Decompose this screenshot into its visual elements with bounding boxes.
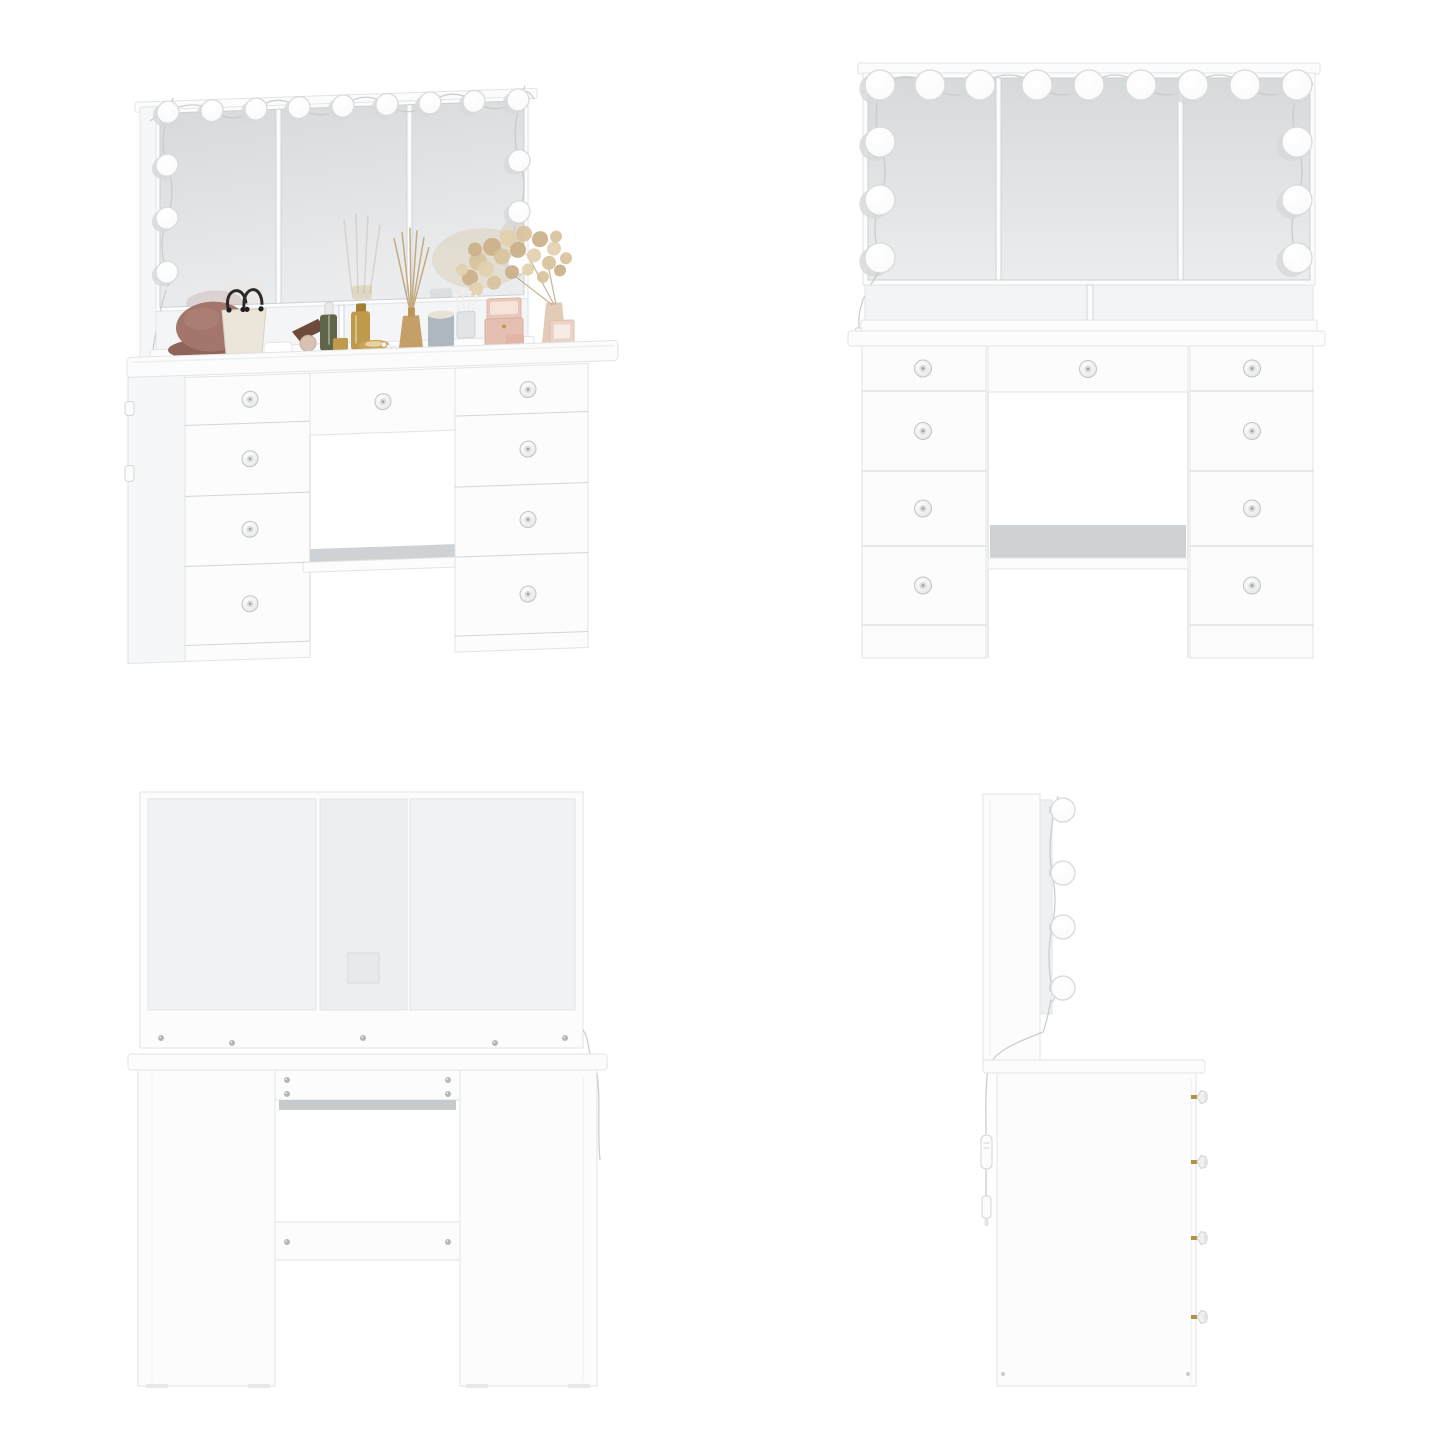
light-bulb <box>1282 127 1312 157</box>
desk-side-panel <box>128 376 185 664</box>
drawer-knob <box>1244 423 1261 440</box>
light-bulb <box>463 90 485 113</box>
screw <box>229 1040 235 1046</box>
view-side <box>723 723 1445 1445</box>
mirror-mullion <box>407 105 412 299</box>
light-bulb <box>419 92 441 115</box>
drawer-knob <box>520 586 536 603</box>
center-drawer <box>988 346 1188 392</box>
power-plug <box>982 1196 991 1226</box>
light-bulb <box>156 207 178 230</box>
power-strip <box>125 401 134 415</box>
drawer-pedestal-right <box>455 363 588 652</box>
back-apron <box>275 1070 460 1100</box>
light-bulb <box>865 127 895 157</box>
screw <box>445 1077 451 1083</box>
small-box <box>506 334 524 345</box>
mirror-mullion <box>276 109 281 303</box>
powder-compact <box>300 335 316 352</box>
metal-rail <box>279 1100 456 1110</box>
drawer-knob <box>520 381 536 398</box>
back-view-illustration <box>0 723 723 1445</box>
light-bulb <box>1282 70 1312 100</box>
cable-cutout <box>348 953 379 983</box>
cream-jar <box>333 338 348 351</box>
light-bulb <box>1282 243 1312 273</box>
candle <box>428 310 454 347</box>
dried-flower-sprig <box>550 230 562 242</box>
pedestal-back-right <box>460 1070 597 1386</box>
cabinet-side <box>997 1073 1196 1386</box>
screw <box>284 1077 290 1083</box>
dried-flower-sprig <box>560 252 572 264</box>
tabletop <box>983 1060 1205 1073</box>
power-strip <box>125 465 134 481</box>
light-bulb <box>1230 70 1260 100</box>
light-bulb <box>865 243 895 273</box>
photo-frame <box>550 320 574 343</box>
inline-switch <box>981 1135 992 1169</box>
view-back <box>0 723 723 1445</box>
screw <box>360 1035 366 1041</box>
light-bulb <box>156 261 178 284</box>
pedestal <box>455 363 588 652</box>
mirror-side-wall <box>140 107 156 360</box>
trifold-mirror-glass <box>868 78 1310 280</box>
light-bulb <box>1178 70 1208 100</box>
light-bulb <box>332 95 354 118</box>
light-bulb <box>1051 861 1075 885</box>
desk-back <box>138 1070 600 1388</box>
knee-shelf <box>988 525 1188 569</box>
light-bulb <box>157 101 179 124</box>
light-bulb <box>245 98 267 121</box>
view-perspective <box>0 0 723 723</box>
light-bulb <box>1126 70 1156 100</box>
light-bulb <box>1282 185 1312 215</box>
screw <box>158 1035 164 1041</box>
light-bulb <box>1051 798 1075 822</box>
drawer-knob <box>915 360 932 377</box>
mirror-mullion <box>1178 78 1183 280</box>
drawer-knob <box>242 595 258 612</box>
dried-flower-sprig <box>532 231 548 248</box>
pedestal-back-left <box>138 1070 275 1386</box>
screw <box>284 1091 290 1097</box>
foot <box>146 1384 168 1388</box>
light-bulb <box>1074 70 1104 100</box>
tabletop <box>128 1054 607 1070</box>
mirror-mullion <box>996 78 1001 280</box>
screw <box>284 1239 290 1245</box>
dried-flower-sprig <box>554 264 566 276</box>
light-bulb <box>376 93 398 116</box>
foot <box>568 1384 590 1388</box>
shelf-divider <box>1087 285 1093 323</box>
drawer-knob <box>375 393 391 410</box>
light-bulb <box>201 99 223 122</box>
light-bulb <box>865 185 895 215</box>
light-bulb <box>508 149 530 172</box>
drawer-knob <box>1244 577 1261 594</box>
light-bulb <box>156 154 178 177</box>
drawer-knob <box>520 511 536 528</box>
center-drawer <box>310 368 455 435</box>
drawer-knob <box>915 500 932 517</box>
back-panel-left <box>148 799 316 1010</box>
drawer-knob <box>242 450 258 467</box>
light-bulb <box>865 70 895 100</box>
light-bulb <box>507 89 529 112</box>
perspective-view-illustration <box>0 0 723 723</box>
drawer-pedestal-right <box>1190 346 1313 658</box>
drawer-knob <box>915 577 932 594</box>
drawer-knob <box>1080 361 1097 378</box>
screw <box>1186 1372 1190 1376</box>
light-bulb <box>915 70 945 100</box>
light-bulb <box>1051 976 1075 1000</box>
light-bulb <box>1051 915 1075 939</box>
mirror-side-slab <box>983 794 1040 1062</box>
screw <box>562 1035 568 1041</box>
dried-flower-sprig <box>547 241 561 255</box>
drawer-knob <box>1244 360 1261 377</box>
foot <box>466 1384 488 1388</box>
hollywood-bulb-string <box>1049 796 1075 1002</box>
drawer-pedestal-left <box>185 373 310 661</box>
side-view-illustration <box>723 723 1445 1445</box>
drawer-pedestal-left <box>862 346 986 658</box>
stretcher <box>275 1222 460 1260</box>
drawer-knob <box>242 391 258 408</box>
screw <box>1001 1372 1005 1376</box>
light-bulb <box>508 200 530 223</box>
dried-flower-sprig <box>527 248 541 262</box>
mirror-edge <box>1040 800 1052 1014</box>
drawer-knob <box>242 521 258 538</box>
drawer-knob <box>1244 500 1261 517</box>
foot <box>248 1384 270 1388</box>
pedestal <box>185 373 310 661</box>
tabletop <box>848 331 1325 346</box>
knee-shelf <box>303 544 463 573</box>
view-front <box>723 0 1445 723</box>
front-view-illustration <box>723 0 1445 723</box>
back-panel-right <box>410 799 575 1010</box>
drawer-knob <box>915 423 932 440</box>
light-bulb <box>965 70 995 100</box>
shelf-floor <box>861 320 1317 332</box>
light-bulb <box>288 96 310 119</box>
screw <box>445 1091 451 1097</box>
open-shelf <box>861 285 1317 332</box>
product-image-grid <box>0 0 1445 1445</box>
dried-flower-sprig <box>542 256 556 270</box>
screw <box>492 1040 498 1046</box>
mirror-back-assembly <box>140 792 592 1058</box>
drawer-knob <box>520 441 536 458</box>
light-bulb <box>1022 70 1052 100</box>
screw <box>445 1239 451 1245</box>
dried-flower-sprig <box>537 271 549 283</box>
